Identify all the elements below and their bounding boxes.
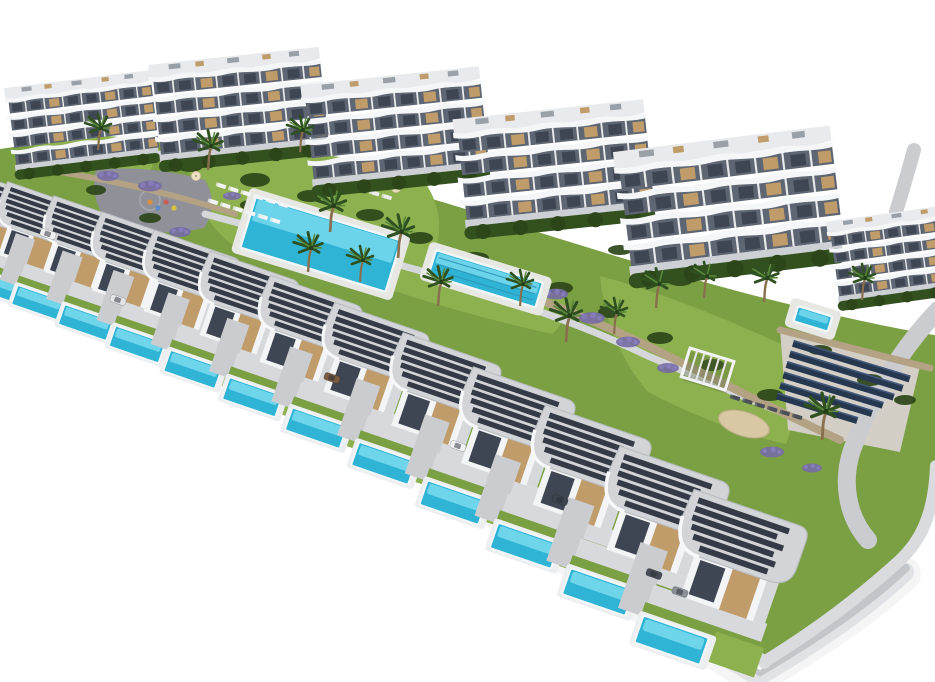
tree-clump-9: [407, 232, 433, 244]
lavender-patch-8: [616, 337, 640, 348]
tree-clump-22: [86, 185, 106, 195]
aerial-render-canvas: [0, 0, 935, 682]
tree-clump-5: [240, 173, 270, 187]
apartment-building-6: [825, 202, 935, 312]
property-aerial-render: [0, 0, 935, 682]
lavender-patch-5: [223, 192, 241, 200]
tree-clump-20: [894, 395, 916, 405]
lavender-patch-11: [802, 464, 822, 473]
playground-item-1: [147, 199, 152, 204]
tree-clump-21: [139, 213, 161, 223]
lavender-patch-4: [169, 227, 191, 237]
playground-item-3: [163, 199, 168, 204]
right-road-top-segment: [896, 150, 914, 212]
lavender-patch-2: [97, 171, 119, 181]
apartment-building-1: [3, 70, 162, 181]
lavender-patch-3: [138, 181, 162, 192]
tree-clump-13: [647, 332, 673, 344]
lavender-patch-7: [579, 312, 605, 324]
apartment-building-5: [612, 125, 848, 290]
lavender-patch-9: [657, 363, 679, 373]
tree-clump-8: [356, 209, 384, 221]
playground-item-2: [155, 205, 160, 210]
lavender-patch-10: [760, 447, 784, 458]
playground-item-4: [171, 205, 176, 210]
apartment-building-2: [147, 47, 331, 174]
parasol-2: [191, 171, 200, 180]
